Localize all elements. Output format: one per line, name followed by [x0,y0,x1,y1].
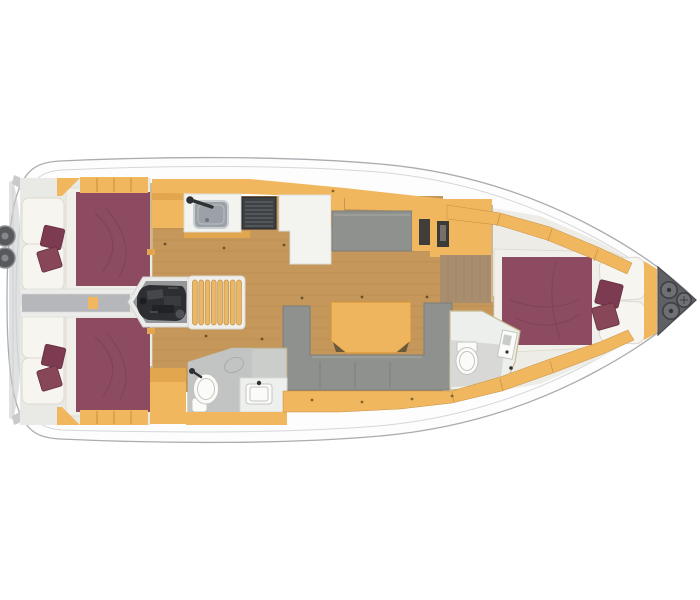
engine-part [176,310,185,319]
salon-table [331,302,411,353]
corridor-wall-lower [20,312,151,317]
sink-drain [205,218,209,222]
port-settee [332,211,412,251]
companionway-steps [188,276,245,329]
bow-trim-strip [644,261,657,340]
aft-cabin-starboard [20,306,155,425]
toilet [456,342,478,375]
aft-cabin-port [20,177,155,295]
stove [242,197,276,229]
engine-part [147,289,164,300]
heads-lower-trim [186,412,287,425]
corridor-wall-upper [20,289,151,294]
accent-pillow [41,344,66,369]
anchor-locker [658,267,696,335]
stern-fitting-upper [0,226,15,246]
heads-cabinet-top [150,368,186,382]
wall-fitting [509,366,513,370]
aft-cabin-port-berth [76,192,150,286]
deck-fitting [677,293,691,307]
engine-part [140,298,147,305]
deck-fitting [661,282,677,298]
bulkhead-laminate [440,255,492,303]
faucet [257,381,261,385]
deck-fitting [663,303,679,319]
engine-part [164,296,181,306]
wardrobe-vent-slats [440,225,446,241]
stern-fitting-lower [0,248,15,268]
salon [283,302,452,390]
door-jamb [147,249,155,255]
door-jamb [147,328,155,334]
corridor-latch [88,297,98,309]
accent-pillow [40,225,65,250]
yacht-floorplan [0,0,700,600]
stern-corridor [22,294,130,312]
yacht-floorplan-canvas [0,0,700,600]
